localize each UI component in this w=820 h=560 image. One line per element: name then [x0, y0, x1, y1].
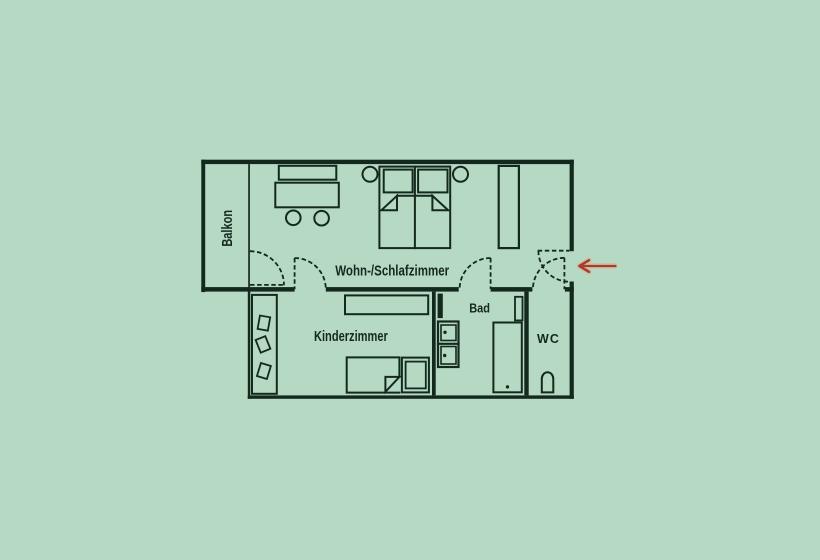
- svg-text:Wohn-/Schlafzimmer: Wohn-/Schlafzimmer: [335, 262, 449, 279]
- svg-text:WC: WC: [537, 332, 560, 346]
- svg-text:Bad: Bad: [469, 302, 490, 316]
- svg-text:Balkon: Balkon: [218, 210, 235, 247]
- svg-text:Kinderzimmer: Kinderzimmer: [314, 328, 388, 345]
